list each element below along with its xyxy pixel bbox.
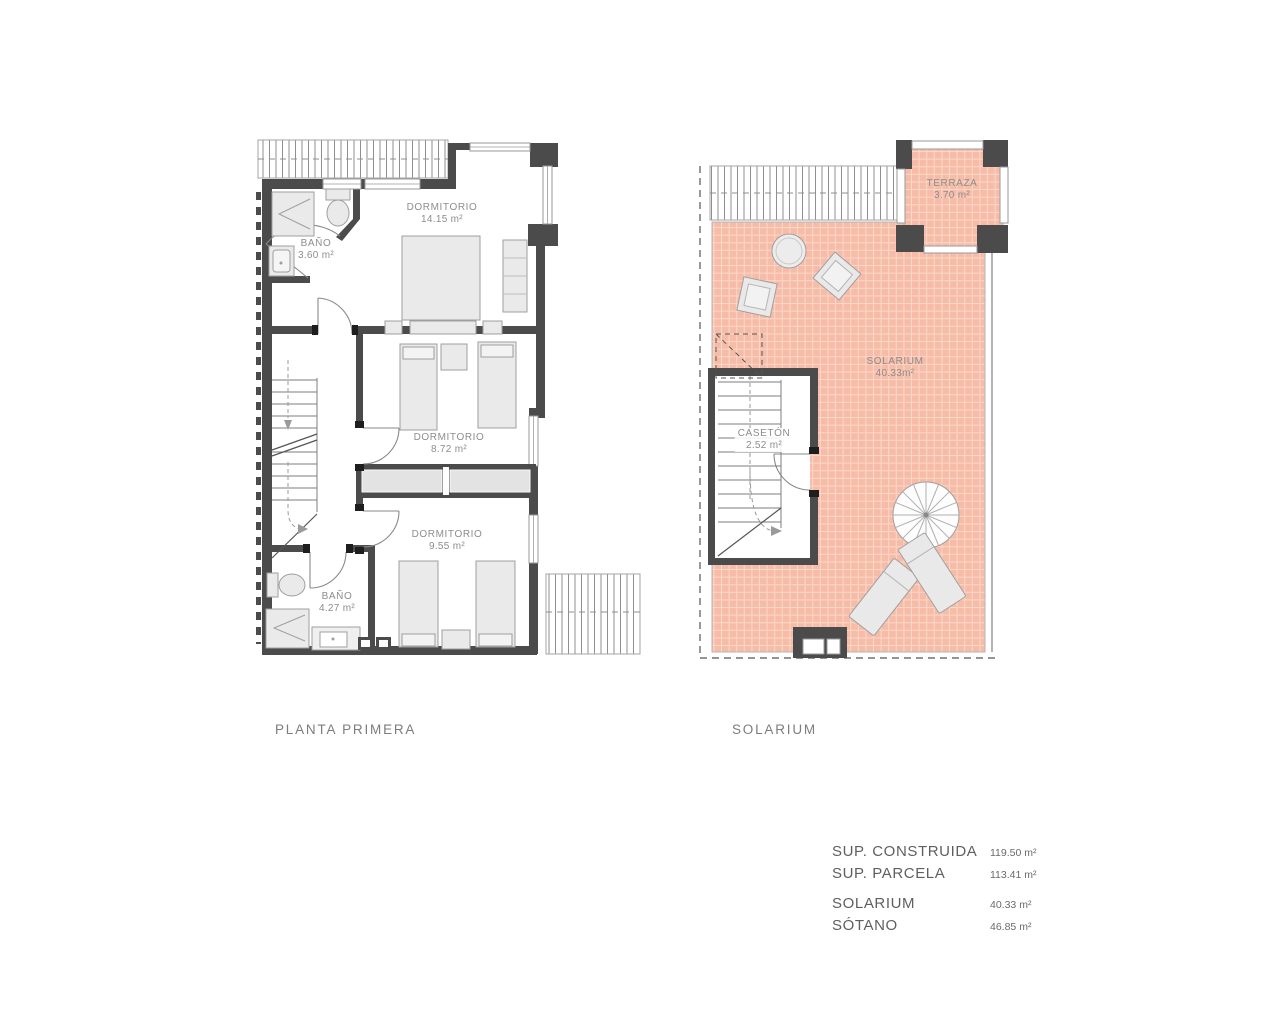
plan-title-planta-primera: PLANTA PRIMERA [275, 722, 416, 737]
floorplan-sheet: BAÑO 3.60 m² DORMITORIO 14.15 m² DORMITO… [0, 0, 1280, 1024]
summary-row-parcela: SUP. PARCELA 113.41 m² [832, 865, 1092, 882]
shower-icon [272, 192, 314, 236]
vanity-sink-icon [312, 627, 360, 650]
sink-icon [269, 246, 294, 276]
single-beds-955 [399, 561, 515, 649]
shower-icon-2 [266, 609, 309, 648]
double-bed [385, 236, 502, 334]
room-label-bano-427: BAÑO 4.27 m² [319, 591, 355, 615]
room-label-bano-360: BAÑO 3.60 m² [298, 238, 334, 262]
summary-row-sotano: SÓTANO 46.85 m² [832, 917, 1092, 934]
room-label-caseton: CASETÓN 2.52 m² [735, 428, 794, 452]
summary-label: SOLARIUM [832, 895, 990, 912]
chair [737, 277, 777, 317]
summary-row-construida: SUP. CONSTRUIDA 119.50 m² [832, 843, 1092, 860]
summary-label: SÓTANO [832, 917, 990, 934]
summary-value: 46.85 m² [990, 921, 1031, 933]
single-beds-872 [400, 342, 516, 430]
door-stops [303, 325, 364, 554]
roof-hatch-top [258, 140, 448, 178]
plan-title-solarium: SOLARIUM [732, 722, 817, 737]
closets [356, 464, 536, 498]
toilet-icon-2 [267, 573, 305, 597]
room-label-terraza: TERRAZA 3.70 m² [927, 178, 978, 202]
summary-value: 113.41 m² [990, 869, 1037, 881]
plan-solarium [700, 140, 1008, 658]
summary-label: SUP. CONSTRUIDA [832, 843, 990, 860]
staircase [272, 360, 317, 558]
summary-value: 40.33 m² [990, 899, 1031, 911]
wardrobe [503, 240, 527, 312]
summary-label: SUP. PARCELA [832, 865, 990, 882]
round-table [772, 234, 806, 268]
toilet-icon [326, 189, 350, 226]
room-label-dormitorio-1415: DORMITORIO 14.15 m² [407, 202, 478, 226]
summary-row-solarium: SOLARIUM 40.33 m² [832, 895, 1092, 912]
room-label-solarium: SOLARIUM 40.33m² [866, 356, 923, 380]
summary-value: 119.50 m² [990, 847, 1037, 859]
room-label-dormitorio-872: DORMITORIO 8.72 m² [414, 432, 485, 456]
roof-hatch-solarium [710, 166, 902, 220]
planter-box [793, 627, 847, 658]
room-label-dormitorio-955: DORMITORIO 9.55 m² [412, 529, 483, 553]
roof-hatch-bottom-right [546, 574, 640, 654]
